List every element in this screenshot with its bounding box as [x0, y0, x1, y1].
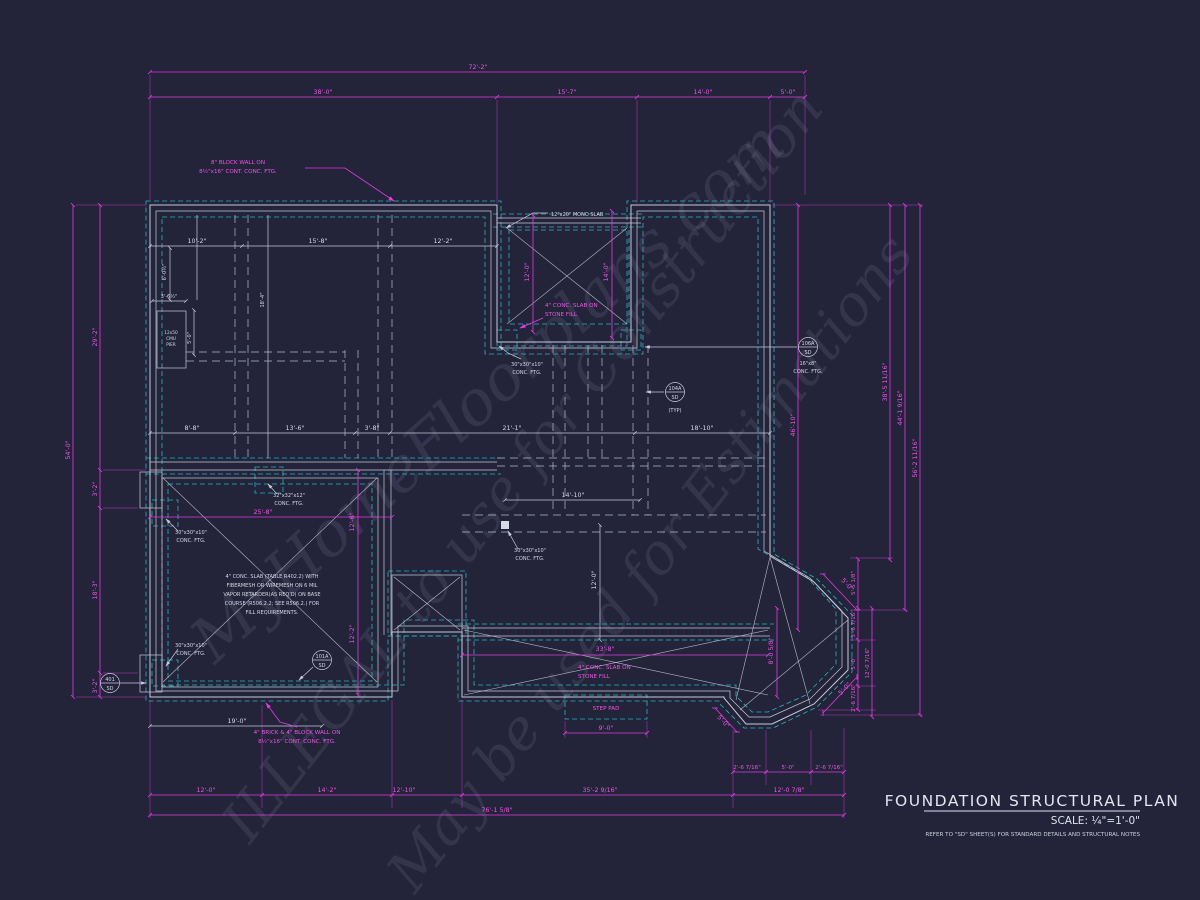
callout-101a-number: 101A: [316, 654, 330, 660]
dim-top-4: 5'-0": [781, 89, 796, 96]
callout-401: 401 SD: [101, 674, 120, 693]
dim-int-b2: 13'-6": [286, 425, 305, 432]
dim-int-c2: 12'-0": [591, 570, 598, 589]
dim-bay-diag-3: 5'-0": [715, 714, 730, 730]
dim-overall-bottom: 76'-1 5/8": [481, 807, 512, 814]
dim-right-s5: 12'-0 7/16": [865, 647, 871, 679]
dim-patio-width: 33'-8": [596, 646, 615, 653]
dim-right-s1: 5'-5 1/8": [851, 571, 857, 595]
note-ftg30-garage-bot-1: 30"x30"x10": [175, 643, 207, 649]
note-pier-2: CMU: [166, 336, 176, 342]
callout-101a-sheet: SD: [318, 663, 325, 669]
note-slab-spec-5: FILL REQUIREMENTS.: [246, 610, 299, 616]
dim-left-1: 29'-2": [92, 327, 99, 346]
dim-int-c1: 14'-10": [562, 492, 585, 499]
sheet-title: FOUNDATION STRUCTURAL PLAN: [885, 792, 1180, 810]
dim-int-b3: 3'-8": [365, 425, 380, 432]
note-mono-slab: 12"x20" MONO SLAB: [551, 212, 604, 218]
dim-left-2: 3'-2": [92, 481, 99, 496]
dim-int-a3: 12'-2": [434, 238, 453, 245]
title-block: FOUNDATION STRUCTURAL PLAN SCALE: ¼"=1'-…: [885, 792, 1180, 838]
dim-right-1: 38'-5 11/16": [882, 362, 889, 401]
dim-garage-depth-2: 12'-2": [349, 624, 356, 643]
dim-int-b1: 8'-8": [185, 425, 200, 432]
watermarks: MyHomeFloorplans.com ILLEGAL to use for …: [175, 77, 926, 900]
note-block-wall-line1: 8" BLOCK WALL ON: [211, 160, 265, 166]
dim-right-inner: 46'-10": [790, 413, 797, 436]
callout-401-number: 401: [105, 677, 115, 683]
callout-104a: 104A SD: [666, 383, 685, 402]
note-step-pad: STEP PAD: [593, 706, 620, 712]
note-porch-slab-line2: STONE FILL: [545, 312, 578, 318]
dim-int-a5: 18'-4": [260, 292, 266, 307]
dim-int-a1: 10'-2": [188, 238, 207, 245]
note-ftg30-garage-bot-2: CONC. FTG.: [176, 651, 206, 657]
dim-int-a2: 15'-8": [309, 238, 328, 245]
dim-right-s4: 2'-6 7/16": [851, 684, 857, 712]
sheet-scale: SCALE: ¼"=1'-0": [1051, 815, 1140, 827]
dim-bottom-4: 35'-2 9/16": [582, 787, 617, 794]
dim-garage-width: 25'-8": [254, 509, 273, 516]
dim-right-s3: 5'-0": [851, 656, 857, 670]
note-ftg16-2: CONC. FTG.: [793, 369, 823, 375]
callout-106a-sheet: SD: [804, 350, 811, 356]
note-slab-spec-4: COURSE (R506.2.2; SEE R506.2.) FOR: [225, 601, 320, 607]
note-ftg30-porch-1: 30"x30"x10": [511, 362, 543, 368]
dim-bottom-t3: 2'-6 7/16": [815, 765, 843, 771]
dim-int-b4: 21'-1": [503, 425, 522, 432]
note-pier-3: PIER: [166, 342, 176, 348]
callout-106a-number: 106A: [802, 341, 816, 347]
dim-garage-bottom: 19'-0": [228, 718, 247, 725]
note-slab-spec-1: 4" CONC. SLAB (TABLE R402.2) WITH: [226, 574, 319, 580]
sheet-note: REFER TO "SD" SHEET(S) FOR STANDARD DETA…: [925, 832, 1140, 838]
dim-right-s2: 3'-6 7/16": [851, 610, 857, 638]
dim-int-b5: 18'-10": [691, 425, 714, 432]
dim-overall-left: 54'-0": [65, 440, 72, 459]
note-ftg32-1: 32"x32"x12": [273, 493, 305, 499]
dim-bottom-1: 12'-0": [197, 787, 216, 794]
callout-104a-sheet: SD: [671, 395, 678, 401]
note-ftg30-garage-top-1: 30"x30"x10": [175, 530, 207, 536]
dim-porch-depth: 14'-0": [603, 262, 610, 281]
dim-bay-height: 8'-0 5/8": [768, 637, 775, 664]
dim-left-3: 18'-3": [92, 580, 99, 599]
dim-left-4: 3'-2": [92, 678, 99, 693]
note-ftg30-pier-1: 30"x30"x10": [514, 548, 546, 554]
dim-top-1: 38'-0": [314, 89, 333, 96]
dim-right-2: 44'-1 9/16": [897, 390, 904, 425]
dim-bottom-t2: 5'-0": [781, 765, 795, 771]
note-slab-spec-3: VAPOR RETARDER(AS REQ'D) ON BASE: [223, 592, 320, 598]
dim-int-a6: 3'-6½": [161, 293, 178, 300]
dim-top-2: 15'-7": [558, 89, 577, 96]
foundation-plan-sheet: MyHomeFloorplans.com ILLEGAL to use for …: [0, 0, 1200, 900]
note-ftg30-porch-2: CONC. FTG.: [512, 370, 542, 376]
dim-right-3: 56'-2 11/16": [912, 438, 919, 477]
note-brick-wall-line1: 4" BRICK & 4" BLOCK WALL ON: [254, 730, 341, 736]
callout-101a: 101A SD: [313, 651, 332, 670]
dim-bottom-2: 14'-2": [318, 787, 337, 794]
dim-top-3: 14'-0": [694, 89, 713, 96]
dim-bottom-3: 12'-10": [393, 787, 416, 794]
dim-porch-width: 12'-0": [524, 262, 531, 281]
callout-106a: 106A SD: [799, 338, 818, 357]
note-slab-spec-2: FIBERMESH OR WIREMESH ON 6 MIL: [226, 583, 317, 589]
callout-401-sheet: SD: [106, 686, 113, 692]
note-ftg30-pier-2: CONC. FTG.: [515, 556, 545, 562]
callout-104a-number: 104A: [669, 386, 683, 392]
dim-int-a7: 5'-0": [187, 332, 193, 344]
dim-overall-top: 72'-2": [469, 64, 488, 71]
note-patio-slab-line1: 4" CONC. SLAB ON: [578, 665, 631, 671]
note-patio-slab-line2: STONE FILL: [578, 674, 611, 680]
note-ftg16-1: 16"x8": [799, 361, 816, 367]
note-block-wall-line2: 8½"x16" CONT. CONC. FTG.: [199, 168, 277, 175]
pier-footing-square: [501, 521, 509, 529]
dim-bottom-5: 12'-0 7/8": [773, 787, 804, 794]
dim-step-width: 9'-0": [599, 725, 614, 732]
note-porch-slab-line1: 4" CONC. SLAB ON: [545, 303, 598, 309]
note-ftg32-2: CONC. FTG.: [274, 501, 304, 507]
note-brick-wall-line2: 8½"x16" CONT. CONC. FTG.: [258, 738, 336, 745]
dim-int-a4: 6'-0½": [161, 264, 168, 281]
dim-garage-depth-1: 12'-6": [349, 512, 356, 531]
note-ftg30-garage-top-2: CONC. FTG.: [176, 538, 206, 544]
dim-bottom-t1: 2'-6 7/16": [733, 765, 761, 771]
note-pier-1: 12x50: [164, 330, 178, 336]
note-typ: (TYP): [668, 408, 681, 414]
